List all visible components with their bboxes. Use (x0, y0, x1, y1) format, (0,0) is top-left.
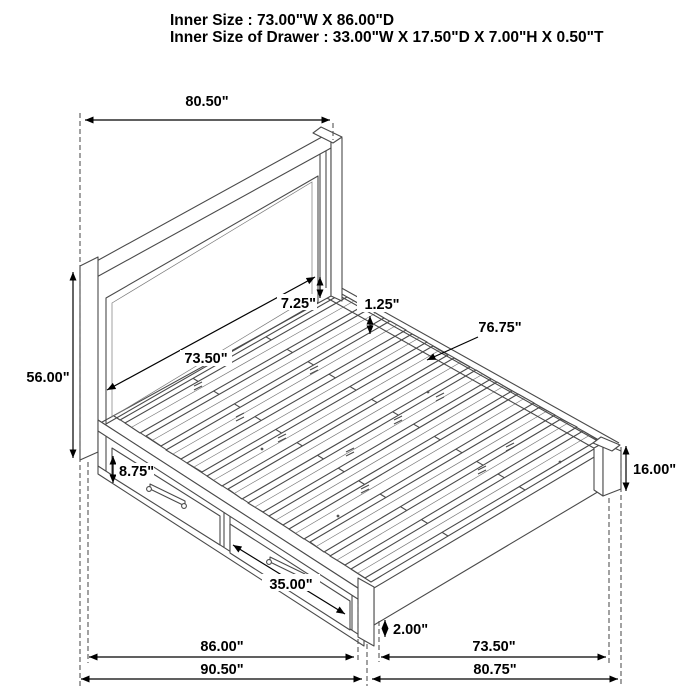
dim-overall-depth: 90.50" (200, 662, 243, 678)
bed-dimension-diagram: 80.50" 56.00" 73.50" 7.25" 1.25" 76.75" … (0, 0, 700, 700)
dim-foot-clearance: 2.00" (393, 622, 428, 638)
dim-overall-width: 80.75" (473, 662, 516, 678)
dim-rail-lip: 1.25" (364, 297, 399, 313)
title-block: Inner Size : 73.00"W X 86.00"D Inner Siz… (170, 12, 604, 46)
dim-headboard-height: 56.00" (26, 370, 69, 386)
foot-right-leg-inner (594, 443, 603, 496)
dim-platform-height: 16.00" (633, 462, 676, 478)
dim-drawer-front-height: 8.75" (119, 464, 154, 480)
dim-slat-deck-length: 76.75" (478, 320, 521, 336)
dim-foot-inner-width: 73.50" (472, 639, 515, 655)
dim-side-length: 86.00" (200, 639, 243, 655)
diagram-canvas: 80.50" 56.00" 73.50" 7.25" 1.25" 76.75" … (0, 0, 700, 700)
dim-headboard-width: 80.50" (185, 94, 228, 110)
title-drawer-inner-size: Inner Size of Drawer : 33.00"W X 17.50"D… (170, 29, 604, 46)
headboard-left-leg (80, 257, 98, 460)
bed-drawing (80, 127, 621, 646)
dim-headboard-to-rail: 7.25" (281, 296, 316, 312)
dim-headboard-panel-width: 73.50" (184, 351, 227, 367)
foot-left-leg (358, 578, 374, 646)
headboard-right-post-side (331, 132, 342, 301)
title-inner-size: Inner Size : 73.00"W X 86.00"D (170, 12, 394, 29)
dim-drawer-front-width: 35.00" (269, 577, 312, 593)
